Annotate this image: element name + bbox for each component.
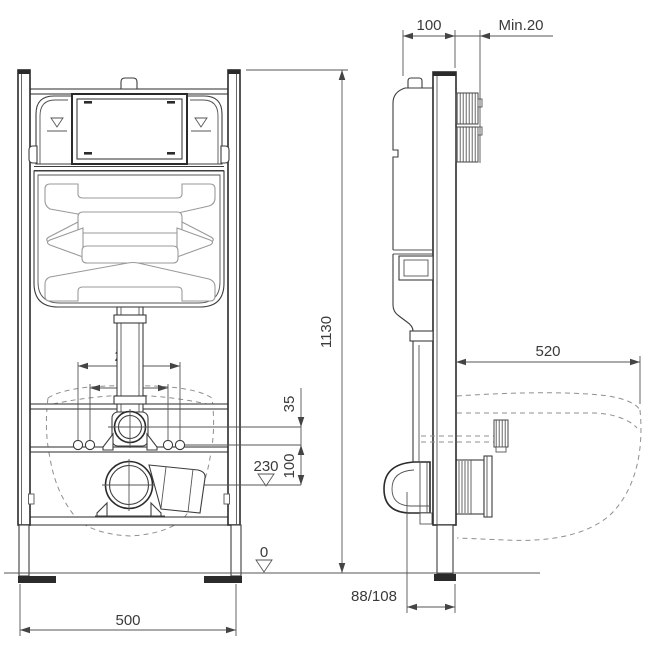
access-window xyxy=(72,94,187,164)
level-label-230: 230 xyxy=(253,458,278,475)
filler-cap xyxy=(121,78,137,89)
shoulder-tab-right xyxy=(221,146,229,163)
bolt xyxy=(175,440,184,449)
rail-clip-left xyxy=(29,494,35,504)
screw-mark xyxy=(167,152,175,155)
side-rail xyxy=(433,72,456,525)
dim-label-35: 35 xyxy=(281,396,298,413)
bolt xyxy=(85,440,94,449)
screw-mark xyxy=(84,101,92,104)
dim-label-100-right: 100 xyxy=(281,453,298,478)
dim-label-500: 500 xyxy=(115,612,140,629)
flush-pipe xyxy=(114,307,146,415)
cistern-shoulder-right xyxy=(186,96,222,164)
outlet-sleeve xyxy=(456,456,492,517)
cistern-body xyxy=(34,171,224,307)
rail-clip-right xyxy=(224,494,230,504)
bolt xyxy=(163,440,172,449)
bolt xyxy=(73,440,82,449)
screw-mark xyxy=(84,152,92,155)
wc-frame-installation-drawing: 230 180 xyxy=(0,0,650,650)
frame-crossbar-bottom xyxy=(30,517,228,525)
wall-blocks xyxy=(456,93,482,162)
frame-rail-right xyxy=(228,70,240,525)
cistern-shoulder-left xyxy=(36,96,72,164)
shoulder-tab-left xyxy=(29,146,37,163)
dim-label-520: 520 xyxy=(535,343,560,360)
dim-label-100-top: 100 xyxy=(416,17,441,34)
frame-rail-left xyxy=(18,70,30,525)
frame-bar-lower xyxy=(30,447,228,452)
dim-label-min20: Min.20 xyxy=(498,17,543,34)
screw-mark xyxy=(167,101,175,104)
level-label-0: 0 xyxy=(260,544,268,561)
technical-drawing-canvas: 230 180 xyxy=(0,0,650,650)
dim-label-1130: 1130 xyxy=(318,316,335,348)
dim-label-88-108: 88/108 xyxy=(351,588,397,605)
